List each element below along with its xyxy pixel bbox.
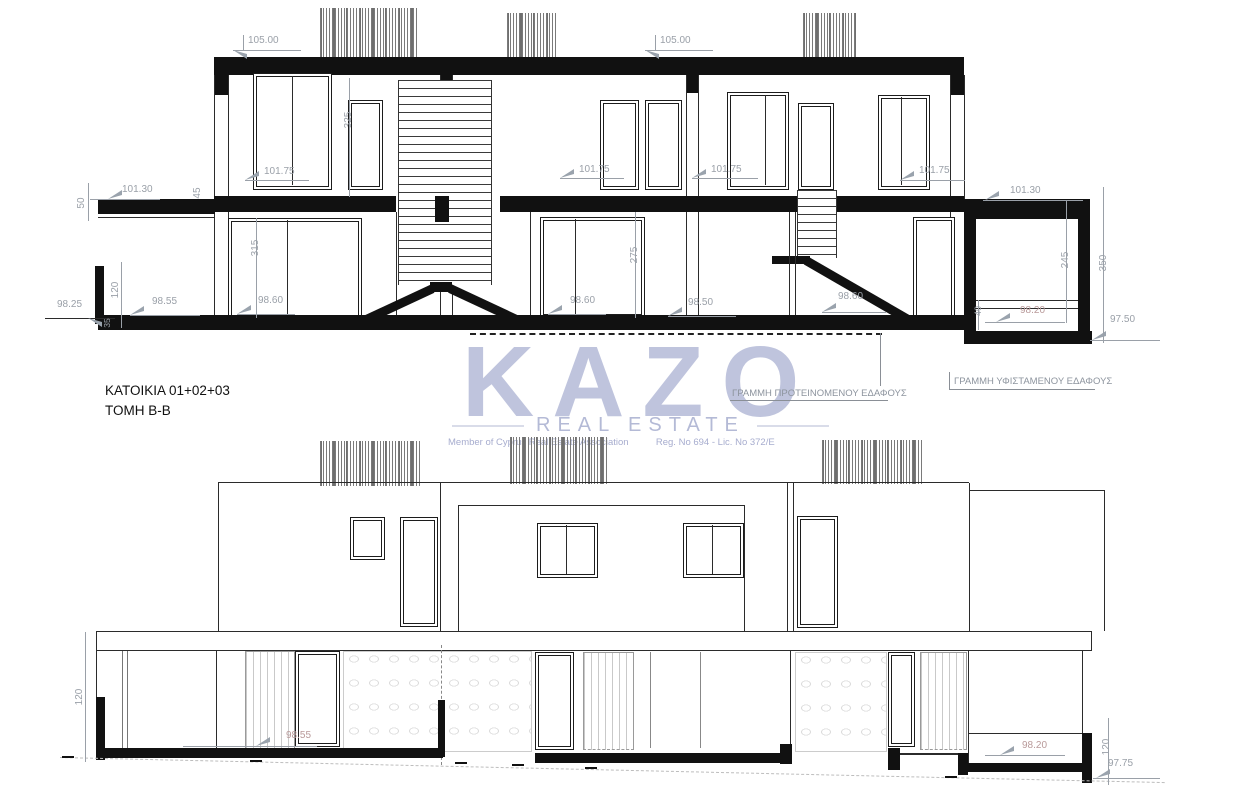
floor-slab-band — [96, 631, 1092, 651]
level-line — [985, 755, 1065, 756]
terrace-parapet-line — [1104, 490, 1105, 631]
stairwell-wall — [789, 212, 790, 316]
ground-dash — [455, 762, 467, 764]
louver-panel — [920, 652, 967, 750]
annotation-tick — [949, 372, 950, 389]
ground-slab — [535, 753, 792, 763]
level-line — [245, 180, 309, 181]
dim-line — [121, 262, 122, 328]
stairwell-wall — [795, 212, 796, 316]
stairwell-wall — [530, 212, 531, 316]
level-arrow — [130, 306, 144, 315]
dim-label: 325 — [344, 105, 354, 135]
window — [600, 100, 639, 190]
level-label: 101.75 — [579, 165, 610, 175]
level-line — [692, 178, 758, 179]
pergola-hatch — [507, 13, 556, 57]
wall-line — [218, 482, 219, 631]
pergola-hatch — [822, 440, 922, 484]
level-arrow — [996, 313, 1010, 322]
wall-post — [780, 744, 792, 764]
stair-landing — [430, 282, 452, 292]
pergola-hatch — [510, 437, 608, 484]
level-arrow — [108, 190, 122, 199]
level-line — [560, 178, 624, 179]
kazo-tagline-row: REAL ESTATE — [452, 414, 829, 437]
wall-line — [968, 651, 969, 763]
drawing-title-line2: ΤΟΜΗ Β-Β — [105, 401, 230, 421]
sliding-window — [228, 218, 362, 320]
stair-wall-stub — [435, 196, 449, 222]
level-label: 97.50 — [1110, 315, 1135, 325]
level-line — [1093, 778, 1160, 779]
dim-label: 120 — [75, 682, 85, 712]
drawing-title-line1: ΚΑΤΟΙΚΙΑ 01+02+03 — [105, 381, 230, 401]
level-line — [237, 314, 295, 315]
column — [214, 75, 228, 95]
level-line — [90, 199, 160, 200]
wall-post — [958, 753, 968, 775]
dim-tick — [655, 35, 656, 50]
terrace-parapet-line — [969, 490, 1104, 491]
window-mullion — [566, 525, 567, 574]
wall-line — [793, 483, 794, 631]
dim-label: 105.00 — [248, 36, 279, 46]
level-line — [183, 746, 317, 747]
window — [798, 103, 834, 190]
proposed-ground-label: ΓΡΑΜΜΗ ΠΡΟΤΕΙΝΟΜΕΝΟΥ ΕΔΑΦΟΥΣ — [732, 388, 907, 399]
wall-line — [787, 483, 788, 631]
ground-dash — [585, 767, 597, 769]
level-label: 101.30 — [1010, 186, 1041, 196]
level-label: 98.20 — [1022, 741, 1047, 751]
pergola-hatch — [803, 13, 856, 57]
level-arrow — [560, 169, 574, 178]
wall-line — [216, 651, 217, 750]
level-line — [983, 200, 1083, 201]
level-label: 101.75 — [264, 167, 295, 177]
wall-post — [96, 697, 105, 760]
wall-line — [790, 651, 791, 748]
level-arrow — [1000, 746, 1014, 755]
window-mullion — [765, 95, 766, 185]
pergola-hatch — [320, 441, 420, 486]
ground-dash — [62, 756, 74, 758]
ground-slab — [968, 763, 1083, 772]
parapet-line — [218, 482, 969, 483]
wall-line — [650, 652, 651, 748]
level-label: 98.60 — [838, 292, 863, 302]
level-label: 98.55 — [286, 731, 311, 741]
window — [400, 517, 438, 627]
dim-tick — [243, 35, 244, 50]
wall-post — [1082, 733, 1092, 783]
architectural-sheet: 105.00 105.00 101.75 101.75 101.75 101.7… — [0, 0, 1233, 792]
window-mullion — [901, 97, 902, 185]
dim-label: 50 — [77, 188, 87, 218]
registration-text: Reg. No 694 - Lic. No 372/E — [656, 437, 775, 448]
window-mullion — [287, 220, 288, 316]
floor-slab — [214, 196, 396, 212]
window — [913, 217, 955, 319]
level-line — [900, 180, 965, 181]
canopy-slab — [964, 199, 1090, 219]
wall-line — [440, 482, 441, 631]
ground-dash — [512, 764, 524, 766]
level-arrow — [822, 303, 836, 312]
level-line — [1090, 340, 1160, 341]
wall-line — [127, 651, 128, 750]
existing-ground-label: ΓΡΑΜΜΗ ΥΦΙΣΤΑΜΕΝΟΥ ΕΔΑΦΟΥΣ — [954, 376, 1112, 387]
level-arrow — [692, 169, 706, 178]
level-label: 98.60 — [570, 296, 595, 306]
stone-cladding — [795, 652, 887, 752]
dim-label: 120 — [1102, 732, 1112, 762]
window — [350, 517, 385, 560]
annotation-underline — [730, 400, 888, 401]
stair-flight-lines — [398, 80, 492, 285]
dim-label: 45 — [193, 178, 203, 208]
pergola-hatch — [320, 8, 417, 57]
window — [797, 516, 838, 628]
bench-line — [976, 300, 1078, 301]
ground-dash — [945, 776, 957, 778]
level-label: 98.50 — [688, 298, 713, 308]
window — [683, 523, 744, 578]
canopy-soffit-line — [98, 217, 215, 218]
dim-line — [645, 50, 713, 51]
wall-post — [888, 748, 900, 770]
leader-line — [880, 333, 881, 386]
dim-label: 40 — [973, 296, 983, 326]
dim-label: 245 — [1061, 245, 1071, 275]
dim-label: 105.00 — [660, 36, 691, 46]
tagline-divider-left — [452, 425, 524, 427]
level-line — [985, 322, 1065, 323]
kazo-tagline: REAL ESTATE — [536, 414, 745, 437]
annotation-underline — [949, 389, 1095, 390]
level-label: 98.20 — [1020, 306, 1045, 316]
louver-panel — [583, 652, 634, 750]
ground-slab-line — [900, 753, 960, 755]
dim-label: 350 — [1099, 248, 1109, 278]
dim-label: 315 — [251, 233, 261, 263]
level-line — [548, 314, 606, 315]
window — [645, 100, 682, 190]
level-label: 98.60 — [258, 296, 283, 306]
window-mullion — [712, 525, 713, 574]
dim-label: 35 — [102, 308, 112, 338]
kazo-membership: Member of Cyprus Real Estate Association… — [448, 437, 775, 448]
step-line — [968, 733, 1083, 734]
dim-label: 275 — [630, 240, 640, 270]
wall-line — [700, 652, 701, 748]
ground-slab — [105, 748, 443, 758]
level-label: 98.25 — [57, 300, 82, 310]
level-line — [822, 312, 886, 313]
terrace-slab — [964, 331, 1092, 344]
dim-line — [233, 50, 301, 51]
tagline-divider-right — [757, 425, 829, 427]
dim-line — [85, 632, 86, 762]
window — [535, 652, 574, 750]
door — [888, 652, 915, 747]
level-line — [130, 315, 200, 316]
terrace-wall — [1078, 219, 1090, 331]
level-label: 101.75 — [711, 165, 742, 175]
wall-line — [1082, 651, 1083, 733]
sliding-door — [727, 92, 789, 190]
dim-line — [349, 78, 350, 197]
floor-slab — [500, 196, 964, 212]
window — [537, 523, 598, 578]
wall-line — [969, 483, 970, 631]
level-label: 101.30 — [122, 185, 153, 195]
level-label: 101.75 — [919, 166, 950, 176]
dim-label: 120 — [111, 275, 121, 305]
level-label: 98.55 — [152, 297, 177, 307]
column — [950, 75, 964, 95]
stair-flight-lines — [797, 190, 837, 258]
dim-line — [88, 183, 89, 221]
drawing-title: ΚΑΤΟΙΚΙΑ 01+02+03 ΤΟΜΗ Β-Β — [105, 381, 230, 421]
wall-line — [122, 651, 123, 750]
level-line — [668, 316, 736, 317]
ground-dash — [250, 760, 262, 762]
